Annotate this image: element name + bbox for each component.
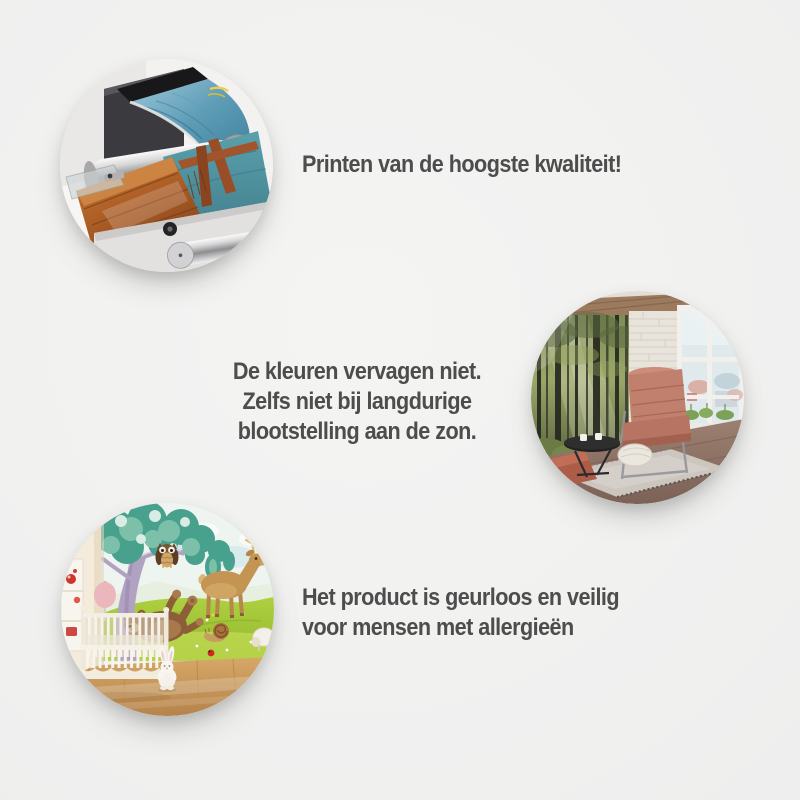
benefit-photo-interior [531,291,744,504]
printer-photo-illustration [60,59,273,272]
benefit-text-print-quality: Printen van de hoogste kwaliteit! [302,150,621,180]
benefit-text-odorless: Het product is geurloos en veilig voor m… [302,583,619,643]
benefit-line: Zelfs niet bij langdurige [227,387,488,417]
nursery-photo-illustration [61,503,274,716]
interior-photo-illustration [531,291,744,504]
benefit-line: Het product is geurloos en veilig [302,583,619,613]
benefit-text-colorfast: De kleuren vervagen niet. Zelfs niet bij… [227,357,488,447]
benefit-line: blootstelling aan de zon. [227,417,488,447]
benefit-line: De kleuren vervagen niet. [227,357,488,387]
benefit-line: voor mensen met allergieën [302,613,619,643]
benefit-line: Printen van de hoogste kwaliteit! [302,150,621,180]
benefit-photo-nursery [61,503,274,716]
benefit-photo-printer [60,59,273,272]
product-benefits-panel: Printen van de hoogste kwaliteit! De kle… [0,0,800,800]
